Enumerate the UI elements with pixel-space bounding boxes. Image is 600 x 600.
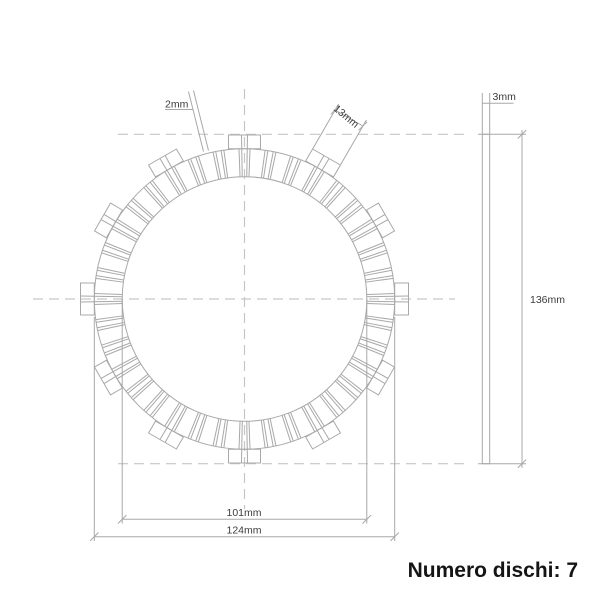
drawing-canvas: 2mm 13mm 3mm 136mm 101mm 124mm Numero di… [0,0,600,600]
dim-label-inner-101mm: 101mm [226,507,261,519]
side-view-plate [482,134,489,463]
dim-label-gap-2mm: 2mm [165,99,189,111]
dim-label-outer-124mm: 124mm [226,525,261,537]
disc-count-label: Numero dischi: 7 [408,559,578,582]
clutch-plate-technical-drawing: 2mm 13mm 3mm 136mm 101mm 124mm Numero di… [0,0,600,600]
dimension-lines [90,91,526,542]
dim-label-thickness-3mm: 3mm [493,91,517,103]
dim-label-tab-13mm: 13mm [331,103,361,131]
centerlines [33,89,468,509]
dim-label-overall-136mm: 136mm [530,294,565,306]
